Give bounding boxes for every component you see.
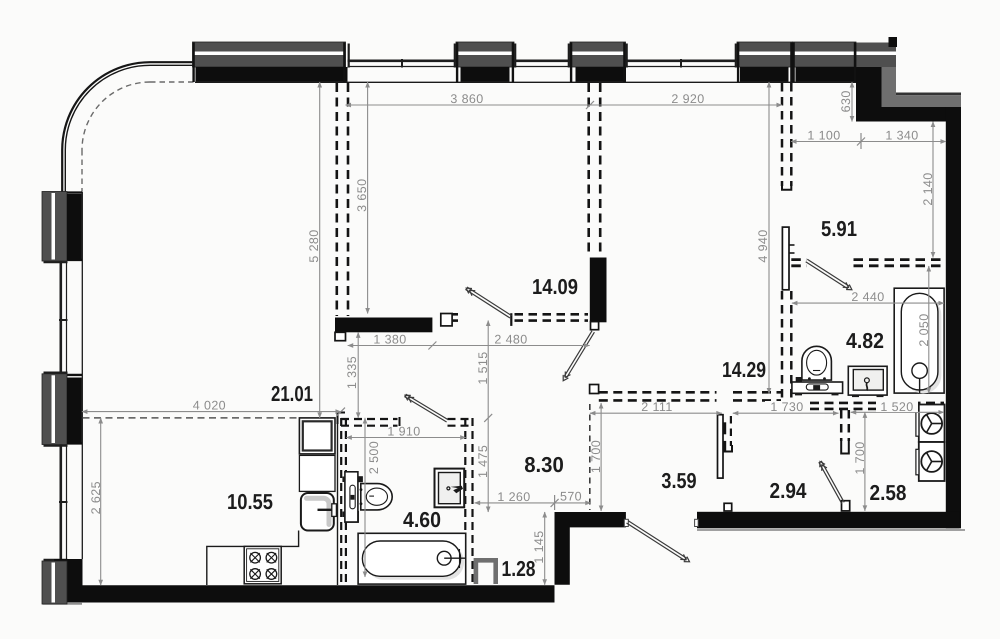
svg-text:1 380: 1 380	[373, 332, 406, 346]
svg-text:4 940: 4 940	[756, 229, 770, 262]
svg-text:570: 570	[560, 489, 582, 503]
svg-text:2.94: 2.94	[770, 478, 807, 503]
svg-text:2 480: 2 480	[494, 332, 527, 346]
svg-text:1 700: 1 700	[589, 440, 603, 473]
svg-text:3.59: 3.59	[661, 468, 696, 493]
svg-text:1 340: 1 340	[885, 128, 918, 142]
svg-text:3 860: 3 860	[450, 92, 483, 106]
svg-text:1 910: 1 910	[387, 425, 420, 439]
svg-text:2 920: 2 920	[671, 92, 704, 106]
svg-text:8.30: 8.30	[524, 452, 564, 477]
svg-text:1 475: 1 475	[476, 445, 490, 478]
svg-text:2 440: 2 440	[851, 290, 884, 304]
svg-text:4 020: 4 020	[193, 399, 226, 413]
svg-text:2 625: 2 625	[89, 481, 103, 514]
svg-text:4.82: 4.82	[846, 328, 884, 353]
svg-text:630: 630	[839, 90, 853, 112]
svg-text:1 730: 1 730	[770, 400, 803, 414]
svg-text:21.01: 21.01	[271, 381, 313, 406]
svg-text:2 500: 2 500	[367, 441, 381, 474]
svg-text:1 700: 1 700	[853, 441, 867, 474]
svg-text:1.28: 1.28	[502, 556, 536, 581]
svg-text:1 100: 1 100	[807, 128, 840, 142]
svg-text:1 515: 1 515	[476, 351, 490, 384]
svg-text:1 260: 1 260	[497, 490, 530, 504]
svg-text:14.29: 14.29	[722, 357, 766, 382]
svg-text:2.58: 2.58	[870, 480, 907, 505]
svg-text:2 050: 2 050	[917, 313, 931, 346]
svg-text:2 140: 2 140	[921, 172, 935, 205]
svg-text:2 111: 2 111	[641, 400, 672, 414]
svg-text:4.60: 4.60	[403, 507, 441, 532]
svg-text:1 520: 1 520	[880, 400, 913, 414]
svg-text:1 335: 1 335	[345, 356, 359, 389]
svg-text:3 650: 3 650	[355, 179, 369, 212]
svg-text:5 280: 5 280	[307, 229, 321, 262]
svg-text:10.55: 10.55	[227, 489, 273, 514]
svg-text:14.09: 14.09	[532, 274, 578, 299]
svg-text:5.91: 5.91	[821, 216, 857, 241]
